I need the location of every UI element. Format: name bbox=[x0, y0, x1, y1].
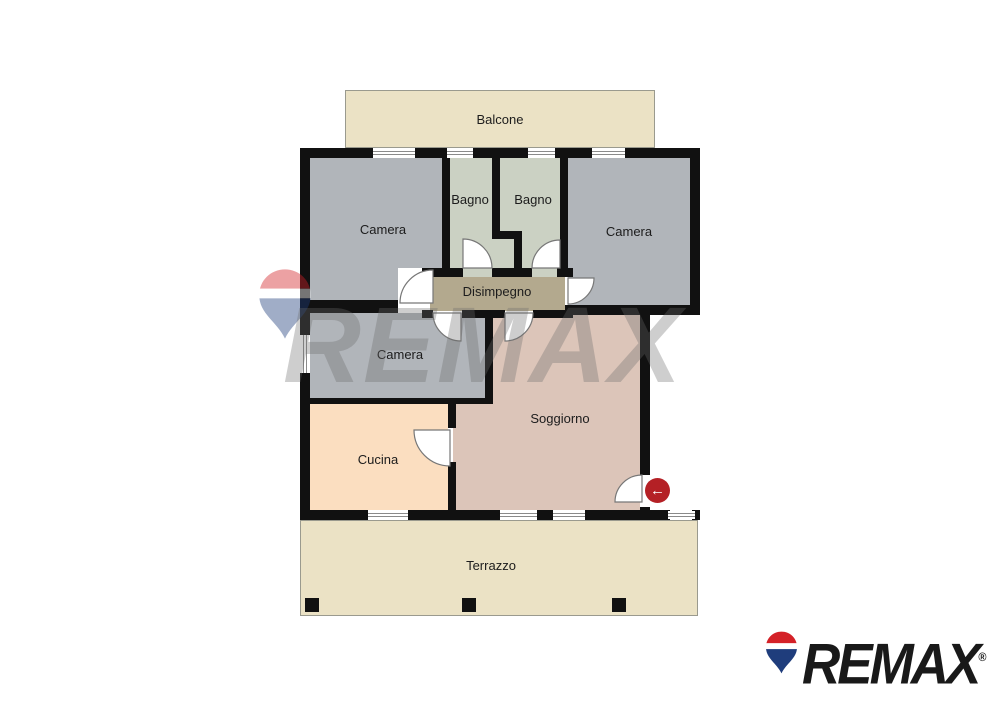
room-label-camera-tr: Camera bbox=[606, 224, 652, 239]
remax-logo-text: REMAX® bbox=[802, 636, 987, 693]
door-arcs bbox=[0, 0, 1000, 707]
registered-trademark-icon: ® bbox=[978, 651, 986, 664]
door-arc bbox=[532, 240, 560, 268]
room-label-bagno-2: Bagno bbox=[514, 192, 552, 207]
door-arc bbox=[400, 270, 433, 303]
entrance-arrow-button[interactable]: ← bbox=[645, 478, 670, 503]
room-label-terrazzo: Terrazzo bbox=[466, 558, 516, 573]
floorplan-page: { "plan": { "rooms": [ {"id": "balcone",… bbox=[0, 0, 1000, 707]
door-arc bbox=[615, 475, 642, 502]
room-label-soggiorno: Soggiorno bbox=[530, 411, 589, 426]
door-arc bbox=[433, 313, 461, 341]
door-arc bbox=[414, 430, 450, 466]
remax-logo: REMAX® bbox=[758, 626, 993, 701]
remax-balloon-icon bbox=[764, 631, 799, 674]
door-arc bbox=[463, 239, 492, 268]
room-label-camera-mid: Camera bbox=[377, 347, 423, 362]
room-label-cucina: Cucina bbox=[358, 452, 398, 467]
room-label-balcone: Balcone bbox=[477, 112, 524, 127]
door-arc bbox=[505, 313, 533, 341]
room-label-bagno-1: Bagno bbox=[451, 192, 489, 207]
room-label-disimpegno: Disimpegno bbox=[463, 284, 532, 299]
floorplan-canvas: ← Balcone Camera Bagno Bagno Camera Disi… bbox=[0, 0, 1000, 707]
room-label-camera-tl: Camera bbox=[360, 222, 406, 237]
door-arc bbox=[568, 278, 594, 304]
arrow-left-icon: ← bbox=[650, 483, 665, 498]
